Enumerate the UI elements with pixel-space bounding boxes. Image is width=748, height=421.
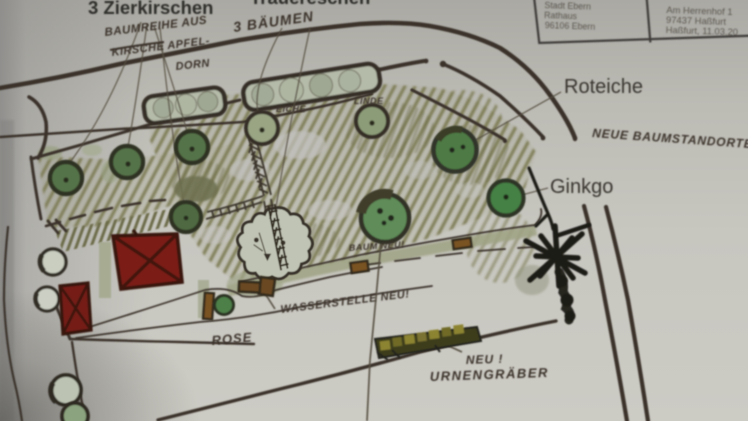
svg-text:Haßfurt, 11.03.20: Haßfurt, 11.03.20 (666, 24, 739, 37)
svg-text:LINDE: LINDE (354, 96, 384, 106)
svg-text:EICHE: EICHE (276, 104, 307, 114)
svg-text:Roteiche: Roteiche (564, 76, 643, 98)
svg-text:96106 Ebern: 96106 Ebern (545, 20, 596, 32)
svg-text:NEU !: NEU ! (466, 352, 504, 367)
svg-text:Trauereschen: Trauereschen (250, 0, 370, 8)
svg-text:Ginkgo: Ginkgo (550, 176, 613, 198)
